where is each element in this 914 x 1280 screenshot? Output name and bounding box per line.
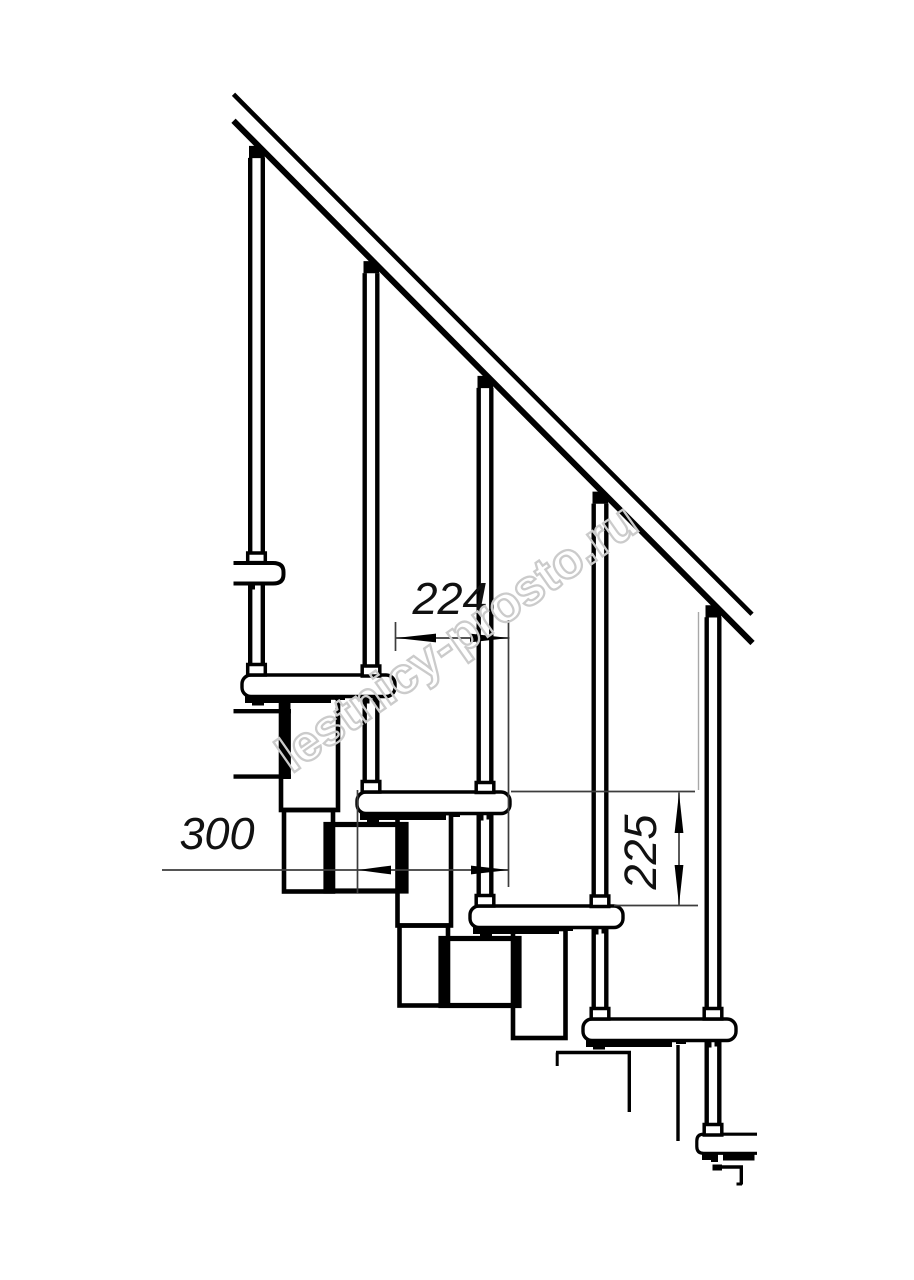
svg-text:300: 300 bbox=[179, 808, 254, 859]
svg-text:225: 225 bbox=[615, 813, 666, 890]
